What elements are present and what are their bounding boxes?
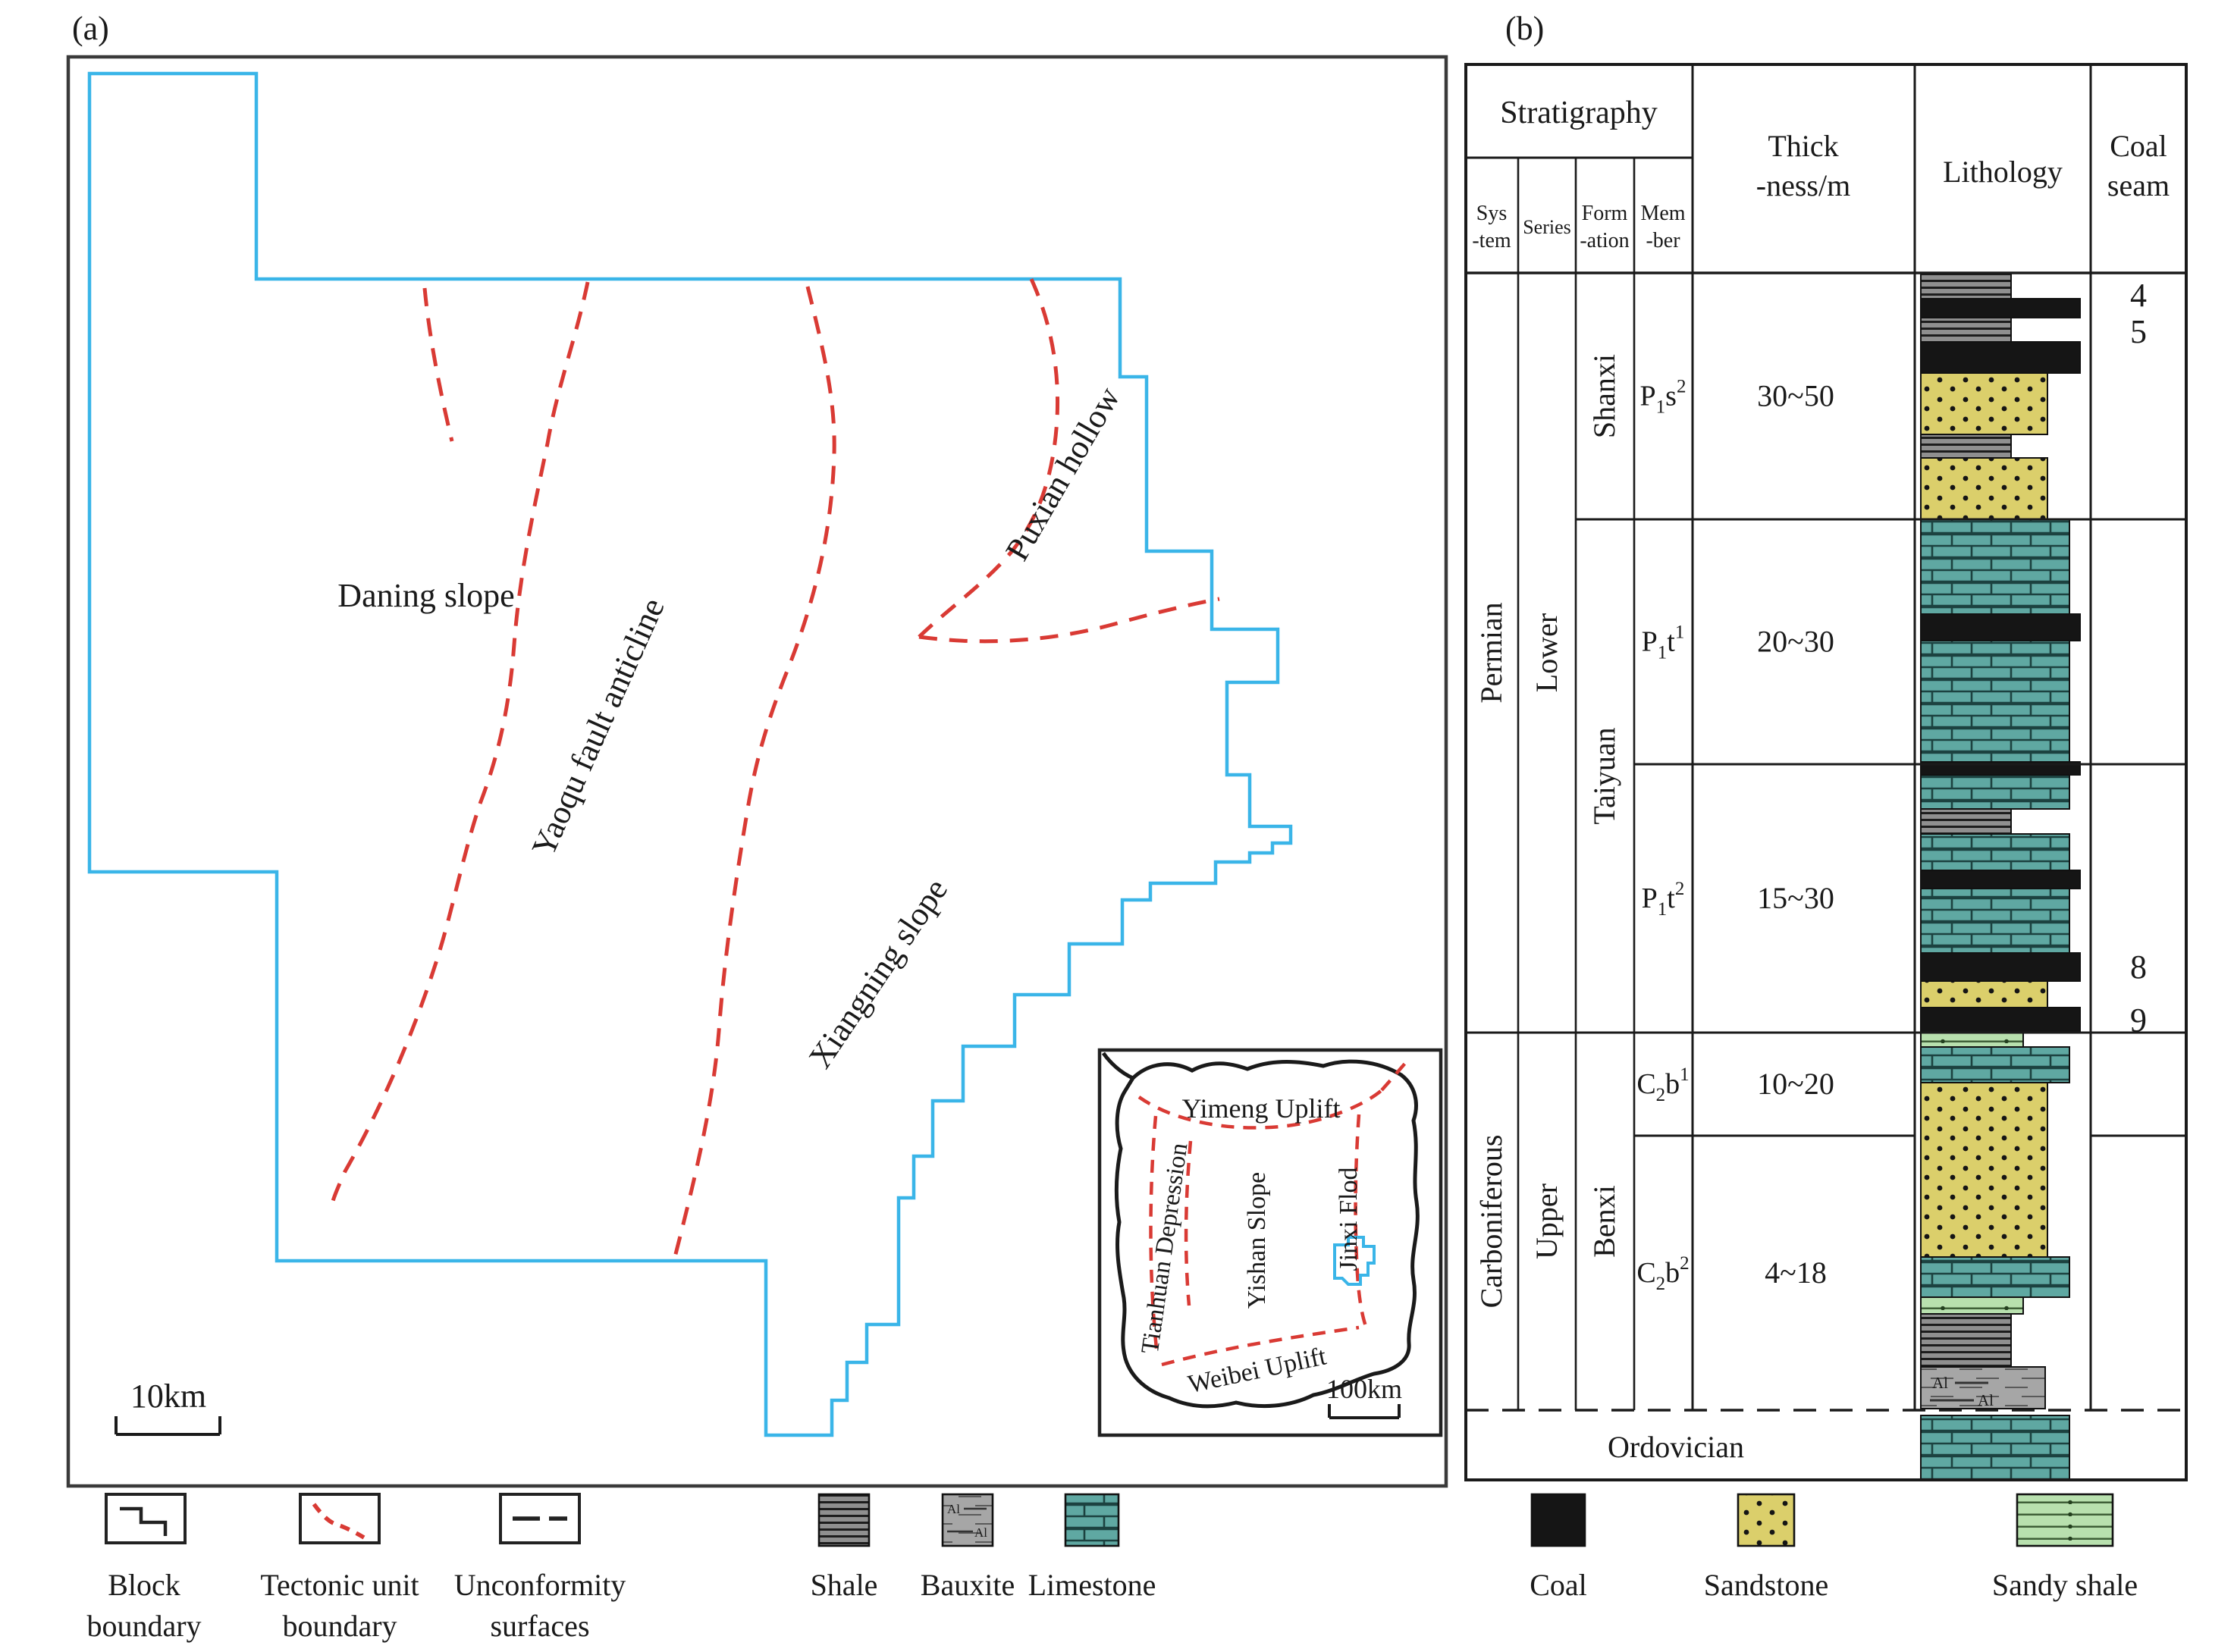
legend-label-sandy-shale: Sandy shale <box>1992 1568 2138 1602</box>
header-coal-seam-2: seam <box>2107 168 2170 202</box>
litho-layer-limestone <box>1921 519 2069 614</box>
litho-layer-sandstone <box>1921 458 2047 519</box>
cell-formation-taiyuan: Taiyuan <box>1587 727 1621 824</box>
litho-layer-coal <box>1921 953 2080 981</box>
inset-label-jinxi-flod: Jinxi Flod <box>1335 1168 1363 1271</box>
litho-layer-shale <box>1921 434 2011 458</box>
legend-label-limestone: Limestone <box>1028 1568 1156 1602</box>
header-formation-1: Form <box>1582 202 1628 225</box>
legend-swatch-limestone <box>1065 1494 1119 1546</box>
scale-bar-inset-label: 100km <box>1326 1374 1402 1404</box>
tectonic-unit-swatch <box>300 1494 379 1543</box>
litho-layer-limestone <box>1921 1415 2069 1480</box>
litho-layer-coal <box>1921 342 2080 373</box>
litho-layer-shale <box>1921 1314 2011 1367</box>
header-series: Series <box>1523 216 1571 238</box>
header-system-1: Sys <box>1476 202 1507 225</box>
strat-table-header: Stratigraphy Sys -tem Series Form -ation… <box>1472 96 2170 252</box>
litho-layer-sandstone <box>1921 981 2047 1008</box>
inset-label-yimeng-uplift: Yimeng Uplift <box>1182 1093 1341 1124</box>
cell-thickness-10-20: 10~20 <box>1757 1067 1834 1101</box>
legend-label-coal: Coal <box>1530 1568 1587 1602</box>
litho-layer-limestone <box>1921 775 2069 809</box>
header-system-2: -tem <box>1472 229 1511 252</box>
cell-system-permian: Permian <box>1474 602 1508 703</box>
panel-a: (a) Daning slopeYaoqu fault anticlinePux… <box>68 10 1446 1486</box>
coal-seam-8: 8 <box>2130 948 2147 986</box>
litho-layer-sandstone <box>1921 373 2047 434</box>
header-thickness-2: -ness/m <box>1756 168 1850 202</box>
legend-label-shale: Shale <box>811 1568 878 1602</box>
litho-layer-sandy_shale <box>1921 1033 2023 1047</box>
legend-label-sandstone: Sandstone <box>1704 1568 1828 1602</box>
bauxite-al-label: Al <box>1932 1374 1948 1392</box>
coal-seam-9: 9 <box>2130 1002 2147 1039</box>
legend-swatch-sandstone <box>1738 1494 1794 1546</box>
legend-label-block-boundary-1: boundary <box>86 1609 201 1643</box>
legend-label-block-boundary-0: Block <box>108 1568 180 1602</box>
cell-series-upper: Upper <box>1530 1183 1564 1259</box>
cell-member-P1t1: P1t1 <box>1642 622 1685 663</box>
panel-b-label: (b) <box>1505 10 1544 47</box>
litho-layer-limestone <box>1921 834 2069 870</box>
legend-labels: BlockboundaryTectonic unitboundaryUnconf… <box>86 1568 626 1643</box>
legend-pattern-swatches: ShaleAlAlBauxiteLimestoneCoalSandstoneSa… <box>811 1494 2138 1602</box>
litho-layer-sandstone <box>1921 1083 2047 1257</box>
legend-swatch-sandy-shale <box>2017 1494 2113 1546</box>
legend: BlockboundaryTectonic unitboundaryUnconf… <box>86 1494 2138 1643</box>
legend-bauxite-al: Al <box>974 1525 987 1540</box>
bauxite-al-label: Al <box>1978 1391 1994 1409</box>
legend-label-bauxite: Bauxite <box>921 1568 1015 1602</box>
cell-formation-shanxi: Shanxi <box>1587 354 1621 438</box>
scale-bar-a-label: 10km <box>130 1378 206 1415</box>
litho-layer-shale <box>1921 809 2011 834</box>
header-lithology: Lithology <box>1943 155 2063 189</box>
header-formation-2: -ation <box>1580 229 1629 252</box>
cell-system-carboniferous: Carboniferous <box>1474 1135 1508 1309</box>
cell-member-C2b2: C2b2 <box>1636 1253 1689 1294</box>
legend-swatch-coal <box>1532 1494 1585 1546</box>
cell-member-P1t2: P1t2 <box>1642 879 1685 920</box>
lithology-column: AlAl <box>1921 273 2080 1480</box>
figure-root: (a) Daning slopeYaoqu fault anticlinePux… <box>0 0 2234 1652</box>
coal-seam-numbers: 4589 <box>2130 277 2147 1039</box>
block-boundary-swatch <box>106 1494 185 1543</box>
cell-thickness-20-30: 20~30 <box>1757 625 1834 659</box>
litho-layer-sandy_shale <box>1921 1297 2023 1314</box>
strat-table-cells: PermianCarboniferousLowerUpperShanxiTaiy… <box>1474 354 1834 1308</box>
coal-seam-4: 4 <box>2130 277 2147 314</box>
legend-swatch-shale <box>819 1494 869 1546</box>
cell-member-P1s2: P1s2 <box>1640 377 1686 418</box>
inset-label-yishan-slope: Yishan Slope <box>1243 1172 1271 1309</box>
cell-thickness-4-18: 4~18 <box>1765 1255 1827 1290</box>
ordovician-label: Ordovician <box>1608 1430 1744 1464</box>
legend-label-tectonic-unit-boundary-0: Tectonic unit <box>260 1568 419 1602</box>
legend-label-unconformity-surfaces-1: surfaces <box>490 1609 589 1643</box>
cell-thickness-30-50: 30~50 <box>1757 379 1834 413</box>
litho-layer-limestone <box>1921 1047 2069 1083</box>
inset-map: Yimeng UpliftTianhuan DepressionYishan S… <box>1100 1050 1441 1435</box>
coal-seam-5: 5 <box>2130 313 2147 350</box>
panel-a-label: (a) <box>72 10 109 47</box>
litho-layer-limestone <box>1921 889 2069 953</box>
litho-layer-coal <box>1921 614 2080 641</box>
cell-member-C2b1: C2b1 <box>1636 1064 1689 1105</box>
legend-label-unconformity-surfaces-0: Unconformity <box>454 1568 626 1602</box>
cell-series-lower: Lower <box>1530 613 1564 692</box>
panel-b: (b) AlAl Stratigraphy Sys -tem Series Fo… <box>1466 10 2186 1480</box>
litho-layer-coal <box>1921 1008 2080 1033</box>
litho-layer-coal <box>1921 870 2080 889</box>
header-member-1: Mem <box>1640 202 1685 225</box>
header-stratigraphy: Stratigraphy <box>1500 96 1658 130</box>
legend-bauxite-al: Al <box>947 1502 960 1516</box>
region-label-daning-slope: Daning slope <box>337 577 514 614</box>
cell-thickness-15-30: 15~30 <box>1757 881 1834 915</box>
cell-formation-benxi: Benxi <box>1587 1185 1621 1258</box>
legend-line-boxes <box>106 1494 579 1543</box>
legend-label-tectonic-unit-boundary-1: boundary <box>282 1609 397 1643</box>
litho-layer-coal <box>1921 299 2080 318</box>
litho-layer-shale <box>1921 318 2011 342</box>
header-member-2: -ber <box>1646 229 1680 252</box>
litho-layer-limestone <box>1921 1257 2069 1297</box>
header-thickness-1: Thick <box>1768 129 1838 163</box>
litho-layer-limestone <box>1921 641 2069 762</box>
header-coal-seam-1: Coal <box>2110 129 2167 163</box>
litho-layer-shale <box>1921 273 2011 299</box>
